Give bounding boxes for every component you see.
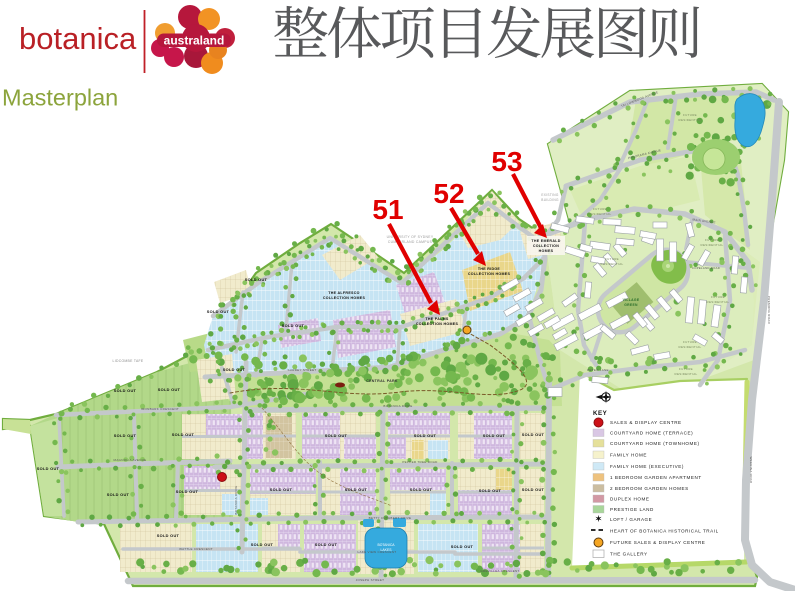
svg-text:CUMBERLAND CAMPUS: CUMBERLAND CAMPUS [388, 240, 433, 244]
svg-text:SOLD OUT: SOLD OUT [251, 542, 274, 547]
svg-text:SURREY STREET: SURREY STREET [287, 368, 316, 372]
svg-text:COURTYARD HOME (TERRACE): COURTYARD HOME (TERRACE) [610, 431, 693, 436]
svg-text:VILLAGE: VILLAGE [623, 298, 640, 302]
svg-text:THE GALLERY: THE GALLERY [610, 552, 648, 557]
svg-text:FUTURE SALES & DISPLAY CENTRE: FUTURE SALES & DISPLAY CENTRE [610, 540, 705, 545]
svg-text:SOLD OUT: SOLD OUT [176, 489, 199, 494]
svg-text:LIDCOMBE TAFE: LIDCOMBE TAFE [113, 359, 144, 363]
svg-text:SOLD OUT: SOLD OUT [245, 277, 268, 282]
svg-text:PRESTIGE LAND: PRESTIGE LAND [610, 507, 654, 512]
svg-text:RESIDENTIAL: RESIDENTIAL [707, 300, 730, 304]
svg-text:BETTY CUTHBERT DRIVE: BETTY CUTHBERT DRIVE [369, 516, 412, 520]
svg-text:FUTURE: FUTURE [593, 207, 607, 211]
svg-text:SOLD OUT: SOLD OUT [522, 487, 545, 492]
svg-text:IRONBARK CRESCENT: IRONBARK CRESCENT [141, 407, 179, 411]
svg-text:SOLD OUT: SOLD OUT [37, 466, 60, 471]
svg-text:WEERINA ROAD: WEERINA ROAD [749, 457, 753, 484]
svg-text:SOLD OUT: SOLD OUT [157, 533, 180, 538]
svg-text:LAKE VIEW CRESCENT: LAKE VIEW CRESCENT [358, 550, 397, 554]
svg-text:CENTRAL PARK: CENTRAL PARK [366, 379, 398, 383]
svg-text:FUTURE: FUTURE [679, 367, 693, 371]
svg-text:SOLD OUT: SOLD OUT [325, 433, 348, 438]
svg-text:RESIDENTIAL: RESIDENTIAL [679, 118, 702, 122]
svg-text:HOMES: HOMES [539, 249, 554, 253]
svg-text:COPELAND ROAD: COPELAND ROAD [692, 266, 720, 270]
svg-text:Masterplan: Masterplan [2, 85, 118, 111]
svg-text:JOSEPH STREET: JOSEPH STREET [356, 578, 385, 582]
svg-text:RESIDENTIAL: RESIDENTIAL [679, 345, 702, 349]
svg-text:2 BEDROOM GARDEN HOMES: 2 BEDROOM GARDEN HOMES [610, 486, 689, 491]
svg-text:SOLD OUT: SOLD OUT [315, 542, 338, 547]
svg-text:SOLD OUT: SOLD OUT [345, 487, 368, 492]
svg-text:FAMILY HOME: FAMILY HOME [610, 453, 647, 458]
svg-text:SOLD OUT: SOLD OUT [114, 433, 137, 438]
svg-text:HEART OF BOTANICA HISTORICAL T: HEART OF BOTANICA HISTORICAL TRAIL [610, 529, 719, 534]
svg-text:SOLD OUT: SOLD OUT [223, 367, 246, 372]
svg-text:SOLD OUT: SOLD OUT [414, 433, 437, 438]
svg-text:RESIDENTIAL: RESIDENTIAL [589, 212, 612, 216]
svg-text:THE RIDGE: THE RIDGE [478, 267, 501, 271]
svg-text:SOLD OUT: SOLD OUT [410, 487, 433, 492]
svg-text:GREVILLEA CRESCENT: GREVILLEA CRESCENT [480, 569, 519, 573]
svg-text:FUTURE: FUTURE [705, 238, 719, 242]
svg-text:MAGNOLIA AVENUE: MAGNOLIA AVENUE [114, 458, 147, 462]
svg-text:COLLECTION HOMES: COLLECTION HOMES [416, 322, 459, 326]
svg-text:THE ALFRESCO: THE ALFRESCO [328, 291, 359, 295]
svg-text:COLLECTION: COLLECTION [533, 244, 559, 248]
svg-text:SOLD OUT: SOLD OUT [451, 544, 474, 549]
svg-text:SOLD OUT: SOLD OUT [158, 387, 181, 392]
svg-text:1 BEDROOM GARDEN APARTMENT: 1 BEDROOM GARDEN APARTMENT [610, 475, 702, 480]
svg-text:australand: australand [164, 34, 225, 48]
svg-text:SOLD OUT: SOLD OUT [270, 487, 293, 492]
svg-text:51: 51 [372, 194, 403, 225]
svg-text:BUILDING: BUILDING [541, 198, 559, 202]
svg-text:53: 53 [491, 146, 522, 177]
svg-text:KEY: KEY [593, 410, 608, 417]
svg-text:PETER LANE: PETER LANE [587, 368, 609, 372]
svg-text:SOLD OUT: SOLD OUT [107, 492, 130, 497]
svg-text:EXISTING: EXISTING [541, 193, 558, 197]
svg-text:THE EMERALD: THE EMERALD [531, 239, 560, 243]
svg-text:SOLD OUT: SOLD OUT [483, 433, 506, 438]
svg-text:RESIDENTIAL: RESIDENTIAL [601, 262, 624, 266]
svg-text:GREEN: GREEN [624, 303, 638, 307]
svg-text:THE PALMS: THE PALMS [425, 317, 448, 321]
svg-text:RESIDENTIAL: RESIDENTIAL [675, 372, 698, 376]
svg-text:FUTURE: FUTURE [605, 257, 619, 261]
svg-text:LOFT / GARAGE: LOFT / GARAGE [610, 517, 652, 522]
svg-text:BOTANICA: BOTANICA [377, 543, 395, 547]
svg-text:SOLD OUT: SOLD OUT [172, 432, 195, 437]
svg-text:BOTANICA DRIVE: BOTANICA DRIVE [383, 404, 412, 408]
svg-text:WATTLE CRESCENT: WATTLE CRESCENT [179, 547, 213, 551]
svg-text:SOLD OUT: SOLD OUT [282, 323, 305, 328]
svg-text:PREMONA ROAD: PREMONA ROAD [767, 296, 771, 325]
svg-text:botanica: botanica [19, 21, 137, 56]
svg-text:COLLECTION HOMES: COLLECTION HOMES [323, 296, 366, 300]
svg-text:COLLECTION HOMES: COLLECTION HOMES [468, 272, 511, 276]
svg-text:DUPLEX HOME: DUPLEX HOME [610, 497, 650, 502]
svg-text:SALES & DISPLAY CENTRE: SALES & DISPLAY CENTRE [610, 420, 682, 425]
svg-text:PEPPER TREE ROAD: PEPPER TREE ROAD [402, 460, 438, 464]
svg-text:RESIDENTIAL: RESIDENTIAL [701, 243, 724, 247]
svg-text:SOLD OUT: SOLD OUT [207, 309, 230, 314]
svg-text:FUTURE: FUTURE [683, 113, 697, 117]
svg-text:BOTANICA DRIVE: BOTANICA DRIVE [234, 485, 238, 514]
svg-text:SOLD OUT: SOLD OUT [114, 388, 137, 393]
svg-text:52: 52 [433, 178, 464, 209]
svg-text:FAMILY HOME (EXECUTIVE): FAMILY HOME (EXECUTIVE) [610, 464, 684, 469]
svg-text:FUTURE: FUTURE [711, 295, 725, 299]
svg-text:SOLD OUT: SOLD OUT [522, 432, 545, 437]
svg-text:SOLD OUT: SOLD OUT [479, 488, 502, 493]
svg-text:FUTURE: FUTURE [683, 340, 697, 344]
svg-text:COURTYARD HOME (TOWNHOME): COURTYARD HOME (TOWNHOME) [610, 441, 700, 446]
